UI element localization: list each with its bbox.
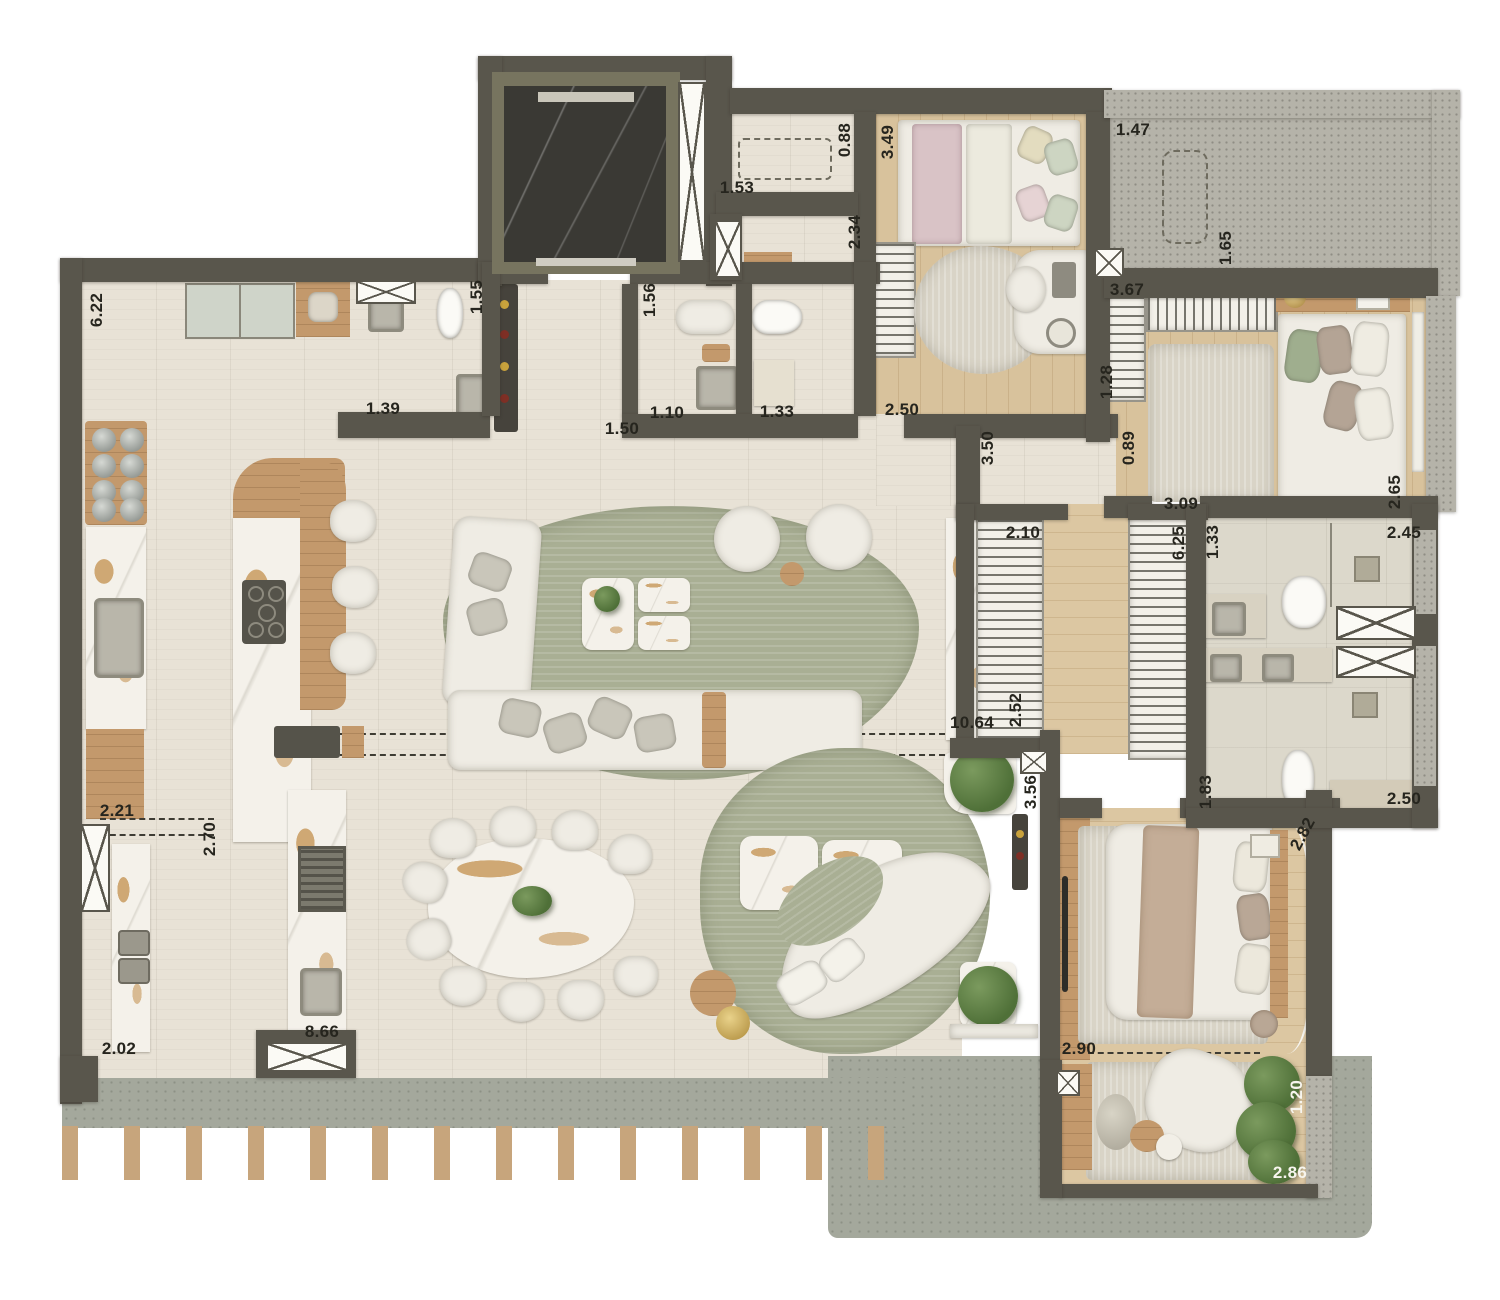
island-sideboard <box>274 726 340 758</box>
dimension-label: 2.70 <box>200 822 220 856</box>
pot <box>92 498 116 522</box>
dimension-label: 6.22 <box>87 293 107 327</box>
window-sill <box>1412 312 1424 472</box>
dimension-label: 2.10 <box>1006 523 1040 543</box>
vent-grille <box>298 846 346 912</box>
pot <box>92 454 116 478</box>
shaft-x-icon <box>678 82 706 262</box>
dining-chair <box>440 966 486 1006</box>
kitchen-sink <box>94 598 144 678</box>
service-toilet <box>437 288 463 338</box>
bathA-toilet <box>1282 576 1326 628</box>
dimension-label: 1.56 <box>640 283 660 317</box>
dining-chair <box>558 980 604 1020</box>
dimension-label: 8.66 <box>305 1022 339 1042</box>
shower-head <box>1354 556 1380 582</box>
dimension-label: 2.52 <box>1006 693 1026 727</box>
wall <box>622 284 638 416</box>
terrace-shelf <box>950 1024 1038 1038</box>
study-table-outline <box>738 138 832 180</box>
wall <box>1060 1184 1318 1198</box>
coffee-machine <box>118 930 150 956</box>
wall <box>338 412 490 438</box>
wall <box>854 262 876 416</box>
dimension-label: 1.10 <box>650 403 684 423</box>
dimension-label: 2.21 <box>100 801 134 821</box>
wall <box>1060 798 1102 818</box>
terrace-top-right-floor <box>1104 118 1434 278</box>
master-tv-screen <box>1062 876 1068 992</box>
folded-towel <box>308 292 338 322</box>
dimension-label: 3.67 <box>1110 280 1144 300</box>
sofa-wood-tray <box>702 692 726 768</box>
appliance <box>118 958 150 984</box>
terrace-table-outline <box>1162 150 1208 244</box>
dimension-label: 2.34 <box>845 215 865 249</box>
terrace-outer-wall <box>1104 90 1460 118</box>
terrace-outer-wall <box>1432 90 1460 296</box>
bar-stool <box>330 632 376 674</box>
bed1-white-blanket <box>966 124 1012 244</box>
dining-chair <box>614 956 658 996</box>
island-sideboard-wood <box>342 726 364 758</box>
shaft-x-icon <box>1336 606 1416 640</box>
coffee-table <box>638 578 690 612</box>
burner <box>268 622 284 638</box>
shaft-x-icon <box>1020 750 1048 774</box>
shower-divider <box>1330 523 1332 607</box>
dimension-label: 2.45 <box>1387 523 1421 543</box>
coffee-table-plant <box>594 586 620 612</box>
dining-chair <box>498 982 544 1022</box>
burner <box>248 622 264 638</box>
master-bed-blanket <box>1137 825 1200 1019</box>
gold-tray-table <box>716 1006 750 1040</box>
shaft-x-icon <box>714 220 742 278</box>
dimension-label: 1.33 <box>1203 525 1223 559</box>
dimension-label: 3.49 <box>878 125 898 159</box>
wall <box>1104 268 1438 298</box>
dimension-label: 1.39 <box>366 399 400 419</box>
pot <box>92 428 116 452</box>
burner <box>248 586 264 602</box>
balcony-planter <box>1096 1094 1136 1150</box>
balcony-outer-wall <box>1306 1076 1332 1198</box>
side-table <box>780 562 804 586</box>
dimension-label: 2.65 <box>1385 475 1405 509</box>
elevator-rail <box>538 92 634 102</box>
floor-plan: 6.22 1.39 1.55 1.53 0.88 3.49 2.34 1.47 … <box>0 0 1500 1300</box>
wall <box>60 258 484 282</box>
bed1-pink-blanket <box>912 124 962 244</box>
dimension-label: 1.65 <box>1216 231 1236 265</box>
dining-chair <box>490 806 536 846</box>
dimension-label: 6.25 <box>1169 526 1189 560</box>
gourmet-sink <box>300 968 342 1016</box>
lavabo-stool <box>702 344 730 362</box>
shaft-x-icon <box>356 280 416 304</box>
laundry-glass-cabinet <box>185 283 295 339</box>
dimension-label: 1.47 <box>1116 120 1150 140</box>
ottoman <box>1250 1010 1278 1038</box>
shaft-x-icon <box>266 1042 348 1072</box>
shaft-x-icon <box>1094 248 1124 278</box>
dimension-label: 3.56 <box>1021 775 1041 809</box>
dining-centerpiece <box>512 886 552 916</box>
bathB-sink <box>1262 654 1294 682</box>
armchair <box>806 504 872 570</box>
dimension-label: 3.50 <box>978 431 998 465</box>
burner <box>258 604 276 622</box>
wall <box>1040 730 1060 1062</box>
dimension-label: 2.86 <box>1273 1163 1307 1183</box>
wall <box>60 1056 98 1102</box>
shaft-x-icon <box>1336 646 1416 678</box>
shaft-x-icon <box>1056 1070 1080 1096</box>
dining-chair <box>608 834 652 874</box>
elevator-cab <box>504 86 666 262</box>
dimension-label: 1.28 <box>1097 365 1117 399</box>
door-track <box>100 834 214 836</box>
wall <box>736 284 752 416</box>
nightstand <box>1250 834 1280 858</box>
lavabo-basin <box>696 366 738 410</box>
dimension-label: 2.50 <box>1387 789 1421 809</box>
pot <box>120 454 144 478</box>
armchair <box>714 506 780 572</box>
bottle <box>500 300 509 309</box>
dimension-label: 1.33 <box>760 402 794 422</box>
bed-pillow <box>1349 320 1390 377</box>
bathA-sink <box>1212 602 1246 636</box>
dimension-label: 1.50 <box>605 419 639 439</box>
dimension-label: 0.89 <box>1119 431 1139 465</box>
dining-chair <box>552 810 598 850</box>
dimension-label: 10.64 <box>950 713 994 733</box>
elevator-door-sill <box>536 258 636 266</box>
bottle <box>1016 830 1024 838</box>
dimension-label: 1.55 <box>467 280 487 314</box>
pot <box>120 498 144 522</box>
pot <box>120 428 144 452</box>
dimension-label: 3.09 <box>1164 494 1198 514</box>
desk-accessories <box>1052 262 1076 298</box>
bed-pillow <box>1235 892 1273 942</box>
bath2-toilet <box>752 300 802 334</box>
wall <box>730 88 1112 114</box>
bar-stool <box>330 500 376 542</box>
burner <box>268 586 284 602</box>
bed-pillow <box>1315 324 1355 376</box>
bathB-sink <box>1210 654 1242 682</box>
bottle <box>500 362 509 371</box>
shaft-x-icon <box>80 824 110 912</box>
desk-clock <box>1046 318 1076 348</box>
dimension-label: 0.88 <box>835 123 855 157</box>
plant <box>958 966 1018 1026</box>
shower-head <box>1352 692 1378 718</box>
bottle <box>500 330 509 339</box>
coffee-table <box>638 616 690 650</box>
bedroom2-rug <box>1148 344 1274 502</box>
bottle <box>500 394 509 403</box>
desk-chair <box>1006 266 1046 312</box>
dimension-label: 1.20 <box>1287 1080 1307 1114</box>
deck-wood-slats <box>62 1126 908 1180</box>
dimension-label: 2.90 <box>1062 1039 1096 1059</box>
dimension-label: 1.83 <box>1196 775 1216 809</box>
dimension-label: 2.50 <box>885 400 919 420</box>
dimension-label: 1.53 <box>720 178 754 198</box>
deck-stone-band <box>62 1078 910 1128</box>
outer-wall <box>1426 296 1456 512</box>
balcony-table <box>1156 1134 1182 1160</box>
lavabo-bench-sink <box>676 300 734 334</box>
dining-chair <box>430 818 476 858</box>
bath2-vanity <box>754 360 794 406</box>
dimension-label: 2.02 <box>102 1039 136 1059</box>
bar-stool <box>332 566 378 608</box>
wall <box>60 258 82 1104</box>
bottle <box>1016 852 1024 860</box>
outer-wall <box>1414 646 1436 786</box>
